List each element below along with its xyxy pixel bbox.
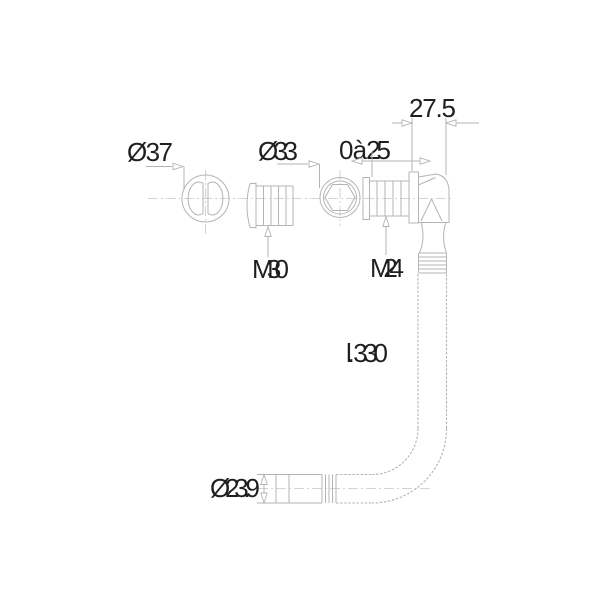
hose-collar-rings: [419, 253, 448, 273]
elbow-neck-right: [444, 223, 447, 253]
outlet-arrow-up: [261, 475, 267, 485]
dimension-outlet-diameter: Ø23.9: [210, 473, 267, 503]
nut-diameter-label: Ø33: [258, 136, 298, 166]
elbow-shoulder-line: [419, 178, 436, 186]
technical-drawing: Ø37 Ø33 0 à 25 27.5 M30 M24: [0, 0, 600, 600]
hose-bend-inner-edge: [372, 429, 418, 475]
adjustment-arrow-right: [420, 158, 430, 164]
m24-leader-arrow: [383, 217, 389, 227]
thread-m24-label: M24: [370, 253, 404, 283]
centerlines: [148, 170, 452, 489]
dimension-cap-diameter: Ø37: [127, 137, 184, 190]
elbow-offset-label: 27.5: [409, 93, 456, 123]
hose-bend-outer-edge: [372, 429, 447, 504]
dimension-elbow-offset: 27.5: [392, 93, 479, 175]
dimension-thread-m24: M24: [370, 217, 404, 284]
dimension-hose-length: l. 330: [346, 338, 388, 368]
m30-adapter-side-view: [247, 183, 293, 229]
elbow-flange: [409, 172, 419, 223]
hose: [336, 274, 447, 503]
elbow-cone-line: [421, 199, 442, 221]
m30-flange-arc: [247, 184, 250, 228]
thread-m30-label: M30: [252, 254, 289, 284]
m30-leader-arrow: [265, 227, 271, 237]
hose-length-label: l. 330: [346, 338, 388, 368]
dimension-nut-diameter: Ø33: [258, 136, 320, 188]
cap-diameter-label: Ø37: [127, 137, 173, 167]
nut-leader-arrow: [309, 161, 319, 167]
outlet-arrow-down: [261, 493, 267, 503]
cap-leader-arrow: [173, 163, 183, 169]
elbow-neck-left: [420, 223, 423, 253]
outlet-diameter-label: Ø23.9: [210, 473, 260, 503]
drawing-page: Ø37 Ø33 0 à 25 27.5 M30 M24: [0, 0, 600, 600]
dimension-adjustment-range: 0 à 25: [339, 135, 430, 177]
dimension-thread-m30: M30: [252, 227, 289, 285]
